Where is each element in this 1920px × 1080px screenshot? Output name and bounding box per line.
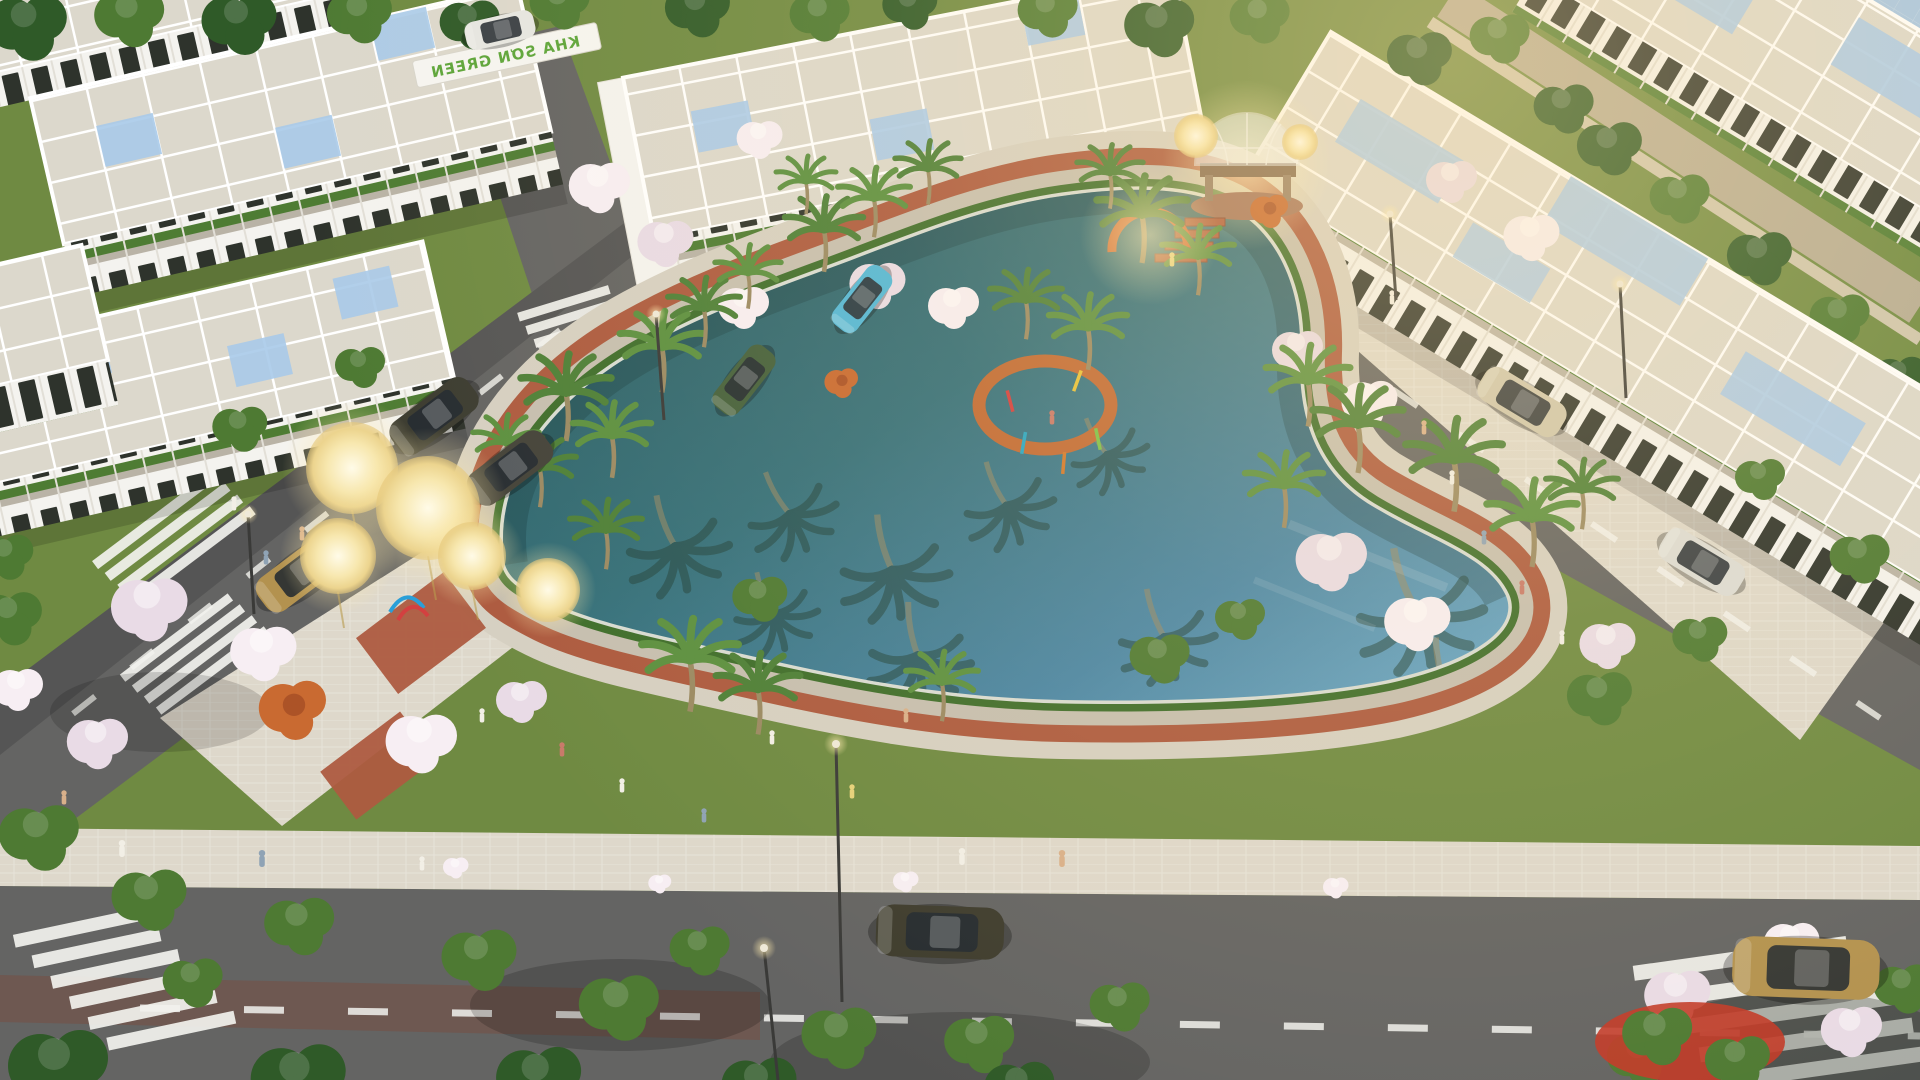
aerial-render: KHA SƠN GREEN bbox=[0, 0, 1920, 1080]
sunlight-overlay bbox=[0, 0, 1920, 1080]
scene-canvas: KHA SƠN GREEN bbox=[0, 0, 1920, 1080]
